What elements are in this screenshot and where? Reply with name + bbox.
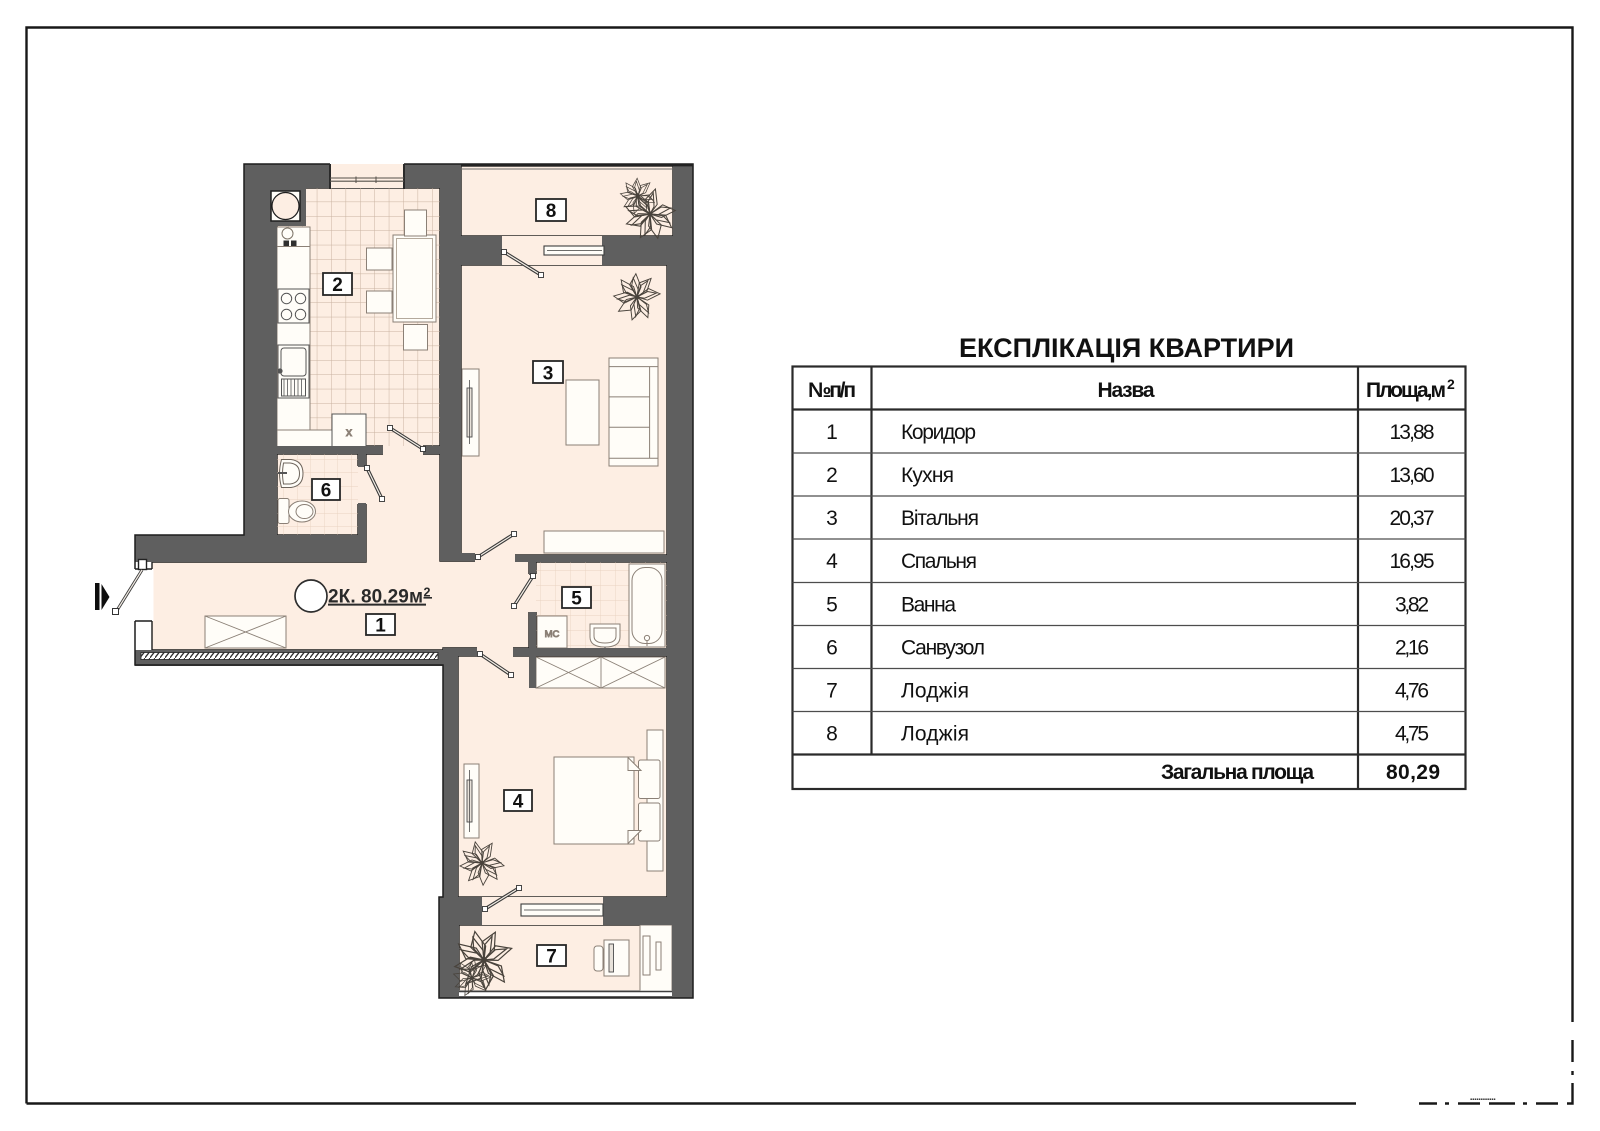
svg-text:7: 7 [546, 947, 557, 968]
svg-text:x: x [346, 425, 352, 439]
svg-text:20,37: 20,37 [1390, 507, 1435, 530]
svg-text:▪▪▪▪▪▪▪▪▪▪▪▪: ▪▪▪▪▪▪▪▪▪▪▪▪ [1470, 1097, 1496, 1103]
svg-text:1: 1 [375, 616, 386, 637]
svg-text:5: 5 [571, 589, 582, 610]
svg-text:2: 2 [826, 464, 838, 487]
svg-text:4,75: 4,75 [1395, 723, 1429, 746]
svg-text:Лоджія: Лоджія [901, 680, 969, 703]
svg-text:13,60: 13,60 [1390, 464, 1435, 487]
svg-text:5: 5 [826, 594, 838, 617]
svg-text:Санвузол: Санвузол [901, 637, 985, 660]
svg-text:2,16: 2,16 [1395, 637, 1429, 660]
svg-text:Вітальня: Вітальня [901, 507, 979, 530]
svg-text:3: 3 [826, 507, 838, 530]
svg-text:4,76: 4,76 [1395, 680, 1429, 703]
svg-text:Лоджія: Лоджія [901, 723, 969, 746]
svg-text:2: 2 [1447, 376, 1455, 392]
svg-text:6: 6 [826, 637, 838, 660]
svg-text:Ванна: Ванна [901, 594, 956, 617]
svg-text:Назва: Назва [1098, 379, 1155, 402]
svg-text:16,95: 16,95 [1390, 550, 1435, 573]
svg-text:МС: МС [545, 629, 560, 640]
svg-text:1: 1 [826, 421, 838, 444]
svg-text:2: 2 [332, 275, 343, 296]
svg-text:Кухня: Кухня [901, 464, 954, 487]
svg-text:ЕКСПЛІКАЦІЯ КВАРТИРИ: ЕКСПЛІКАЦІЯ КВАРТИРИ [959, 333, 1294, 363]
svg-text:4: 4 [513, 792, 524, 813]
svg-text:4: 4 [826, 550, 838, 573]
svg-text:Загальна площа: Загальна площа [1161, 761, 1314, 784]
svg-text:3,82: 3,82 [1395, 594, 1429, 617]
svg-text:Площа,м: Площа,м [1366, 379, 1446, 402]
svg-text:7: 7 [826, 680, 838, 703]
svg-text:8: 8 [546, 201, 557, 222]
svg-text:6: 6 [321, 481, 332, 502]
svg-text:Спальня: Спальня [901, 550, 977, 573]
svg-text:80,29: 80,29 [1386, 761, 1440, 784]
svg-text:13,88: 13,88 [1390, 421, 1435, 444]
svg-text:№п/п: №п/п [808, 379, 856, 402]
svg-text:8: 8 [826, 723, 838, 746]
svg-text:Коридор: Коридор [901, 421, 976, 444]
svg-text:3: 3 [543, 364, 554, 385]
